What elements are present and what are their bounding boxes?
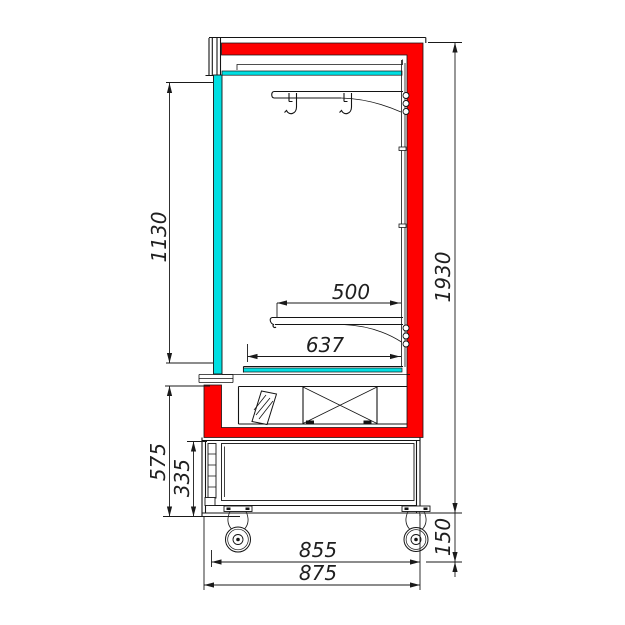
- front-frame-section: [199, 375, 233, 383]
- technical-drawing-canvas: 1130 575 335 1930 150 500: [0, 0, 625, 625]
- bottom-deck: [222, 367, 410, 375]
- top-glass-panel: [222, 71, 402, 75]
- red-frame-highlight: [204, 43, 423, 438]
- wall-mount-rings: [403, 93, 409, 115]
- dim-label-575: 575: [146, 443, 170, 481]
- hinge-strip: [208, 444, 216, 499]
- dim-label-500: 500: [332, 280, 370, 304]
- glass-door-panel: [214, 75, 223, 374]
- machine-compartment: [202, 438, 420, 517]
- dim-label-1930: 1930: [431, 252, 455, 303]
- dim-label-335: 335: [170, 459, 194, 497]
- dim-label-150: 150: [431, 518, 455, 556]
- display-case-side-view: 1130 575 335 1930 150 500: [0, 0, 625, 625]
- dimension-shelf-depth: 500: [277, 280, 401, 318]
- hanging-hook: [285, 93, 297, 114]
- evaporator-unit: [239, 387, 408, 425]
- wall-mount-rings: [403, 325, 409, 347]
- dim-label-1130: 1130: [147, 212, 171, 263]
- fan-symbol: [252, 391, 277, 425]
- dimension-deck-depth: 637: [248, 333, 402, 362]
- service-panel: [222, 444, 415, 501]
- dim-label-855: 855: [299, 538, 337, 562]
- hanging-hook: [340, 93, 352, 114]
- dimension-glass-front-height: 1130: [147, 83, 213, 364]
- dimension-caster-clearance: 150: [421, 503, 462, 572]
- dim-label-875: 875: [299, 561, 337, 585]
- dimension-overall-height: 1930: [428, 43, 462, 578]
- hook-rail: [272, 92, 409, 115]
- dim-label-637: 637: [306, 333, 344, 357]
